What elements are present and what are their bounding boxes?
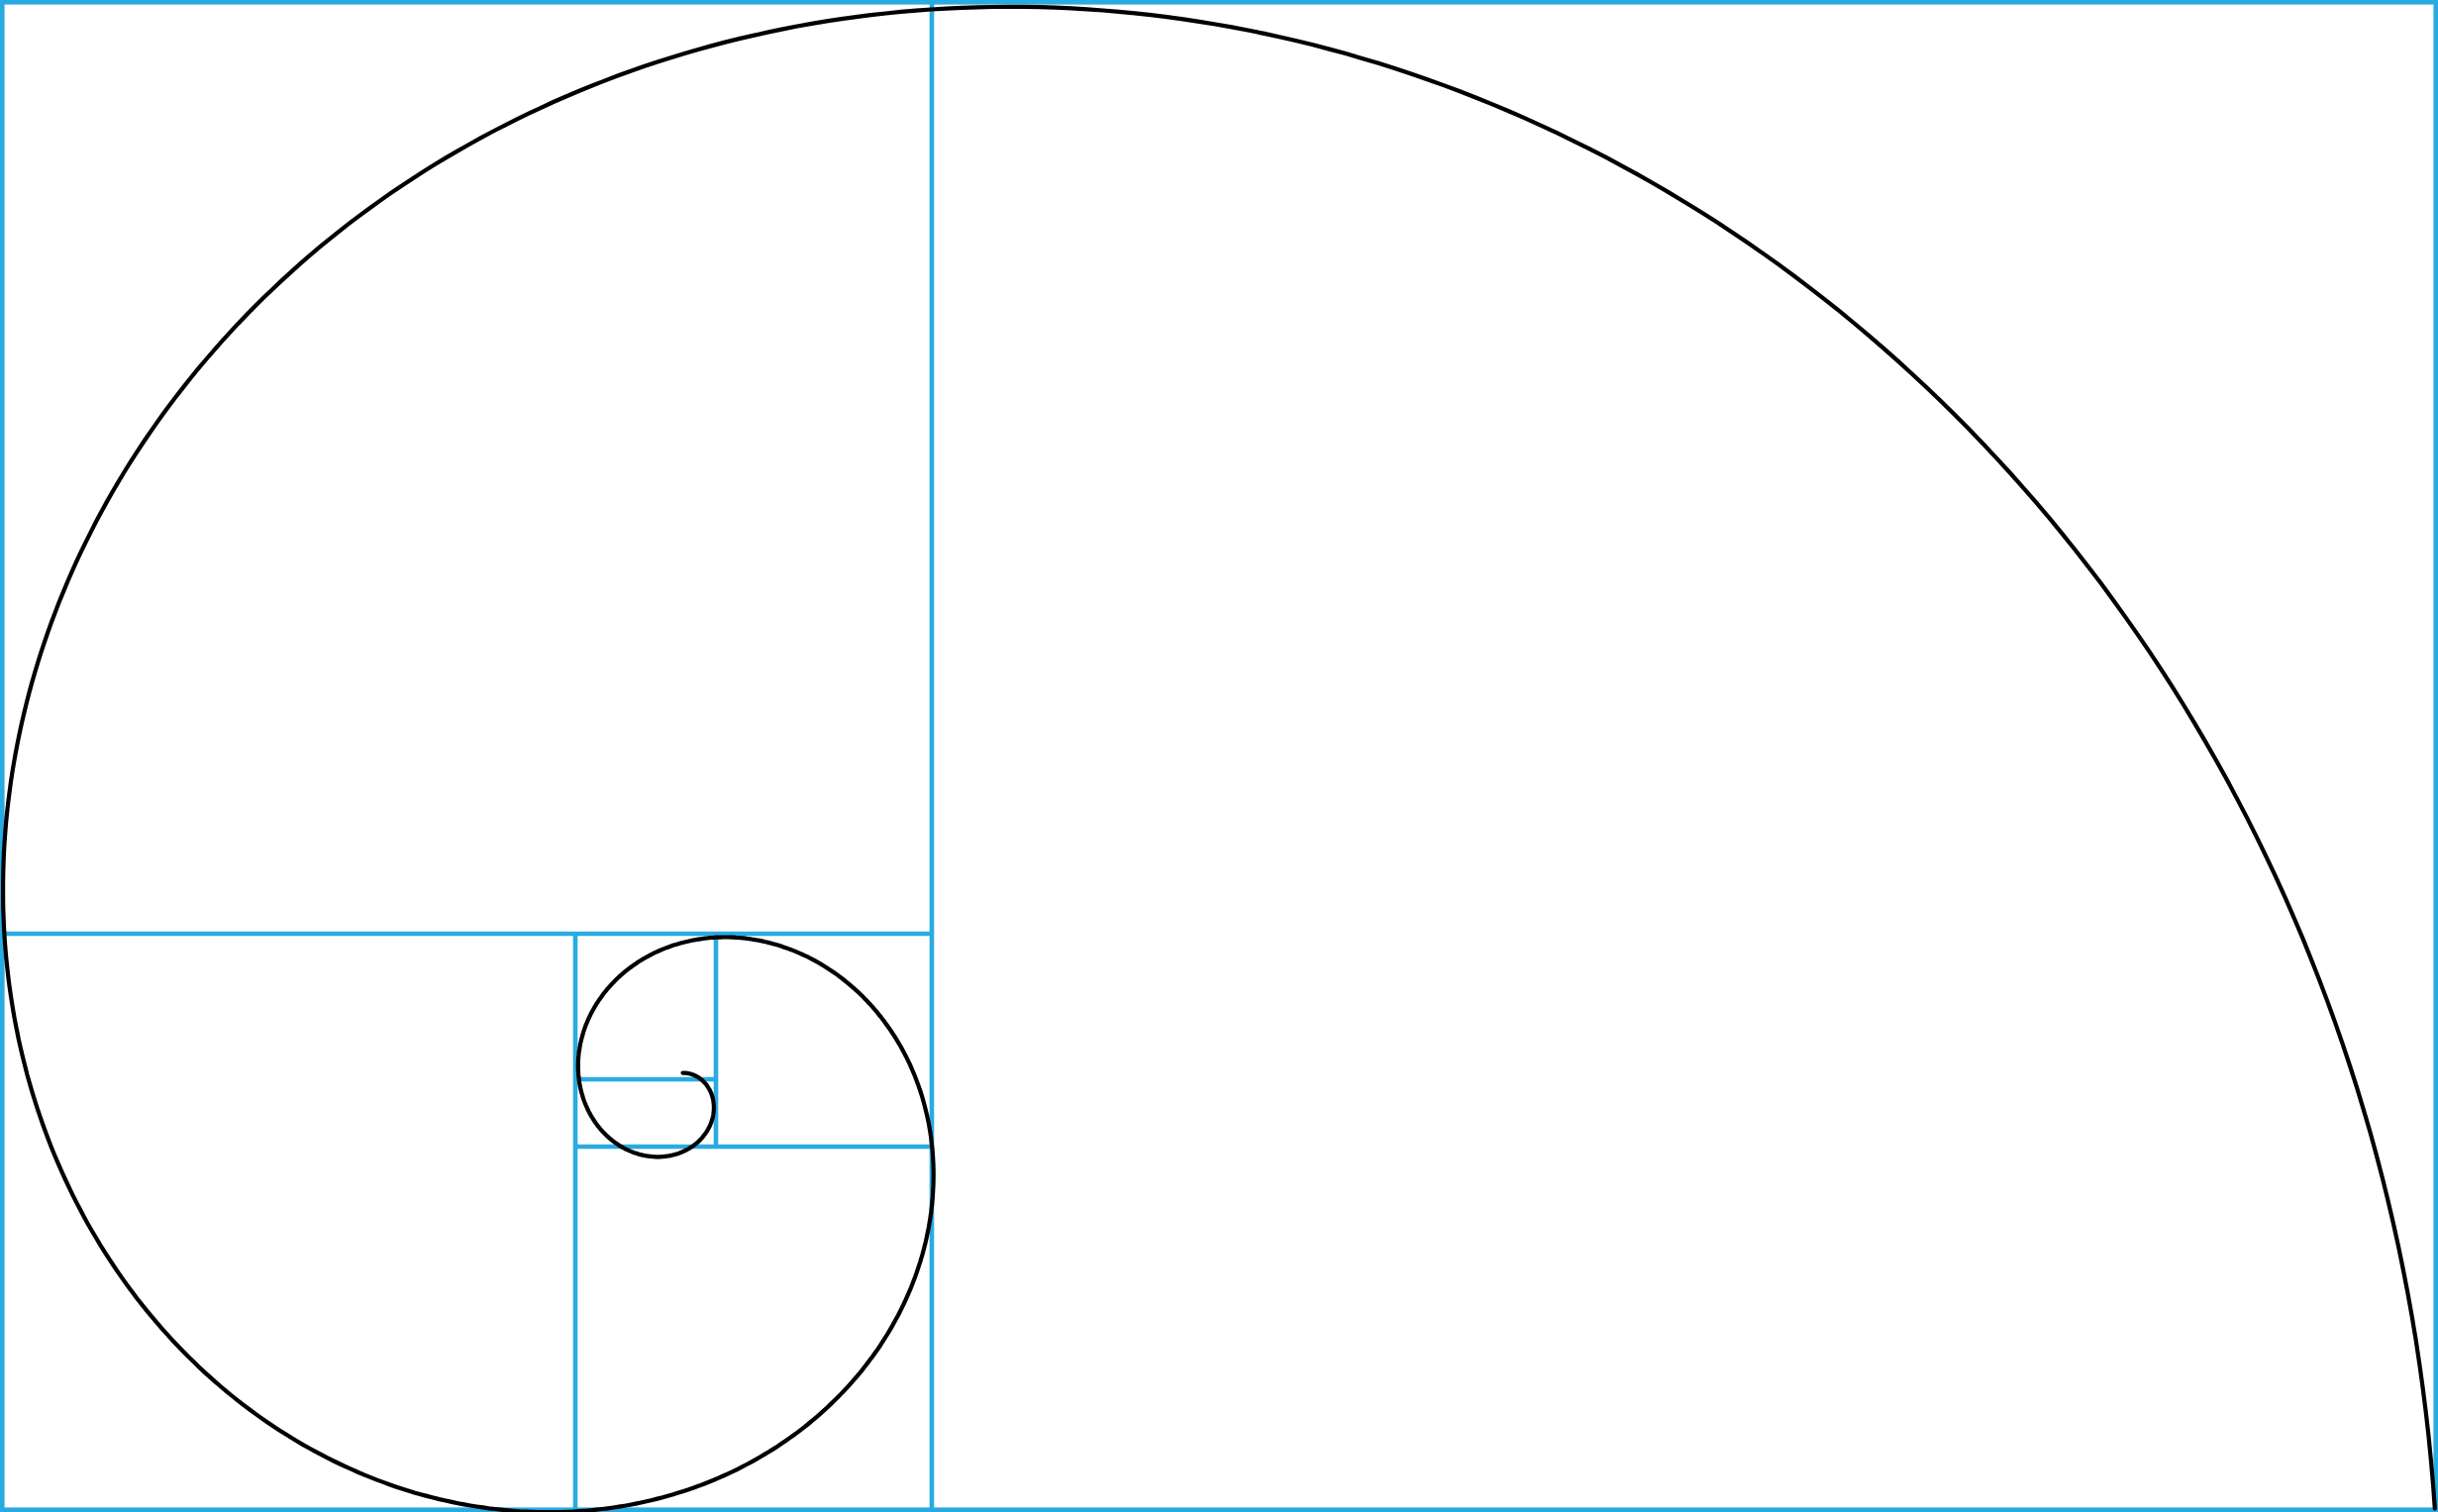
- golden-ratio-diagram: [0, 0, 2438, 1512]
- canvas-background: [0, 0, 2438, 1512]
- diagram-stage: [0, 0, 2438, 1512]
